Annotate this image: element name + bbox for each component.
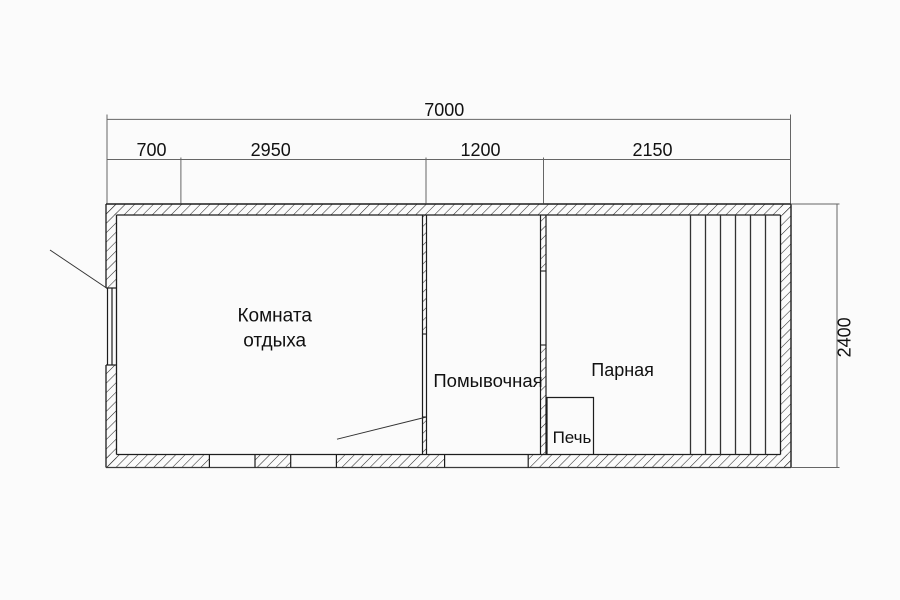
svg-text:Печь: Печь	[553, 428, 592, 447]
svg-text:1200: 1200	[460, 140, 500, 160]
svg-text:2400: 2400	[835, 317, 855, 357]
svg-text:2950: 2950	[251, 140, 291, 160]
svg-text:2150: 2150	[632, 140, 672, 160]
svg-text:Парная: Парная	[591, 360, 654, 380]
svg-text:700: 700	[136, 140, 166, 160]
svg-text:отдыха: отдыха	[243, 331, 306, 352]
svg-text:Помывочная: Помывочная	[433, 370, 542, 391]
svg-text:Комната: Комната	[237, 306, 312, 327]
svg-text:7000: 7000	[424, 100, 464, 120]
